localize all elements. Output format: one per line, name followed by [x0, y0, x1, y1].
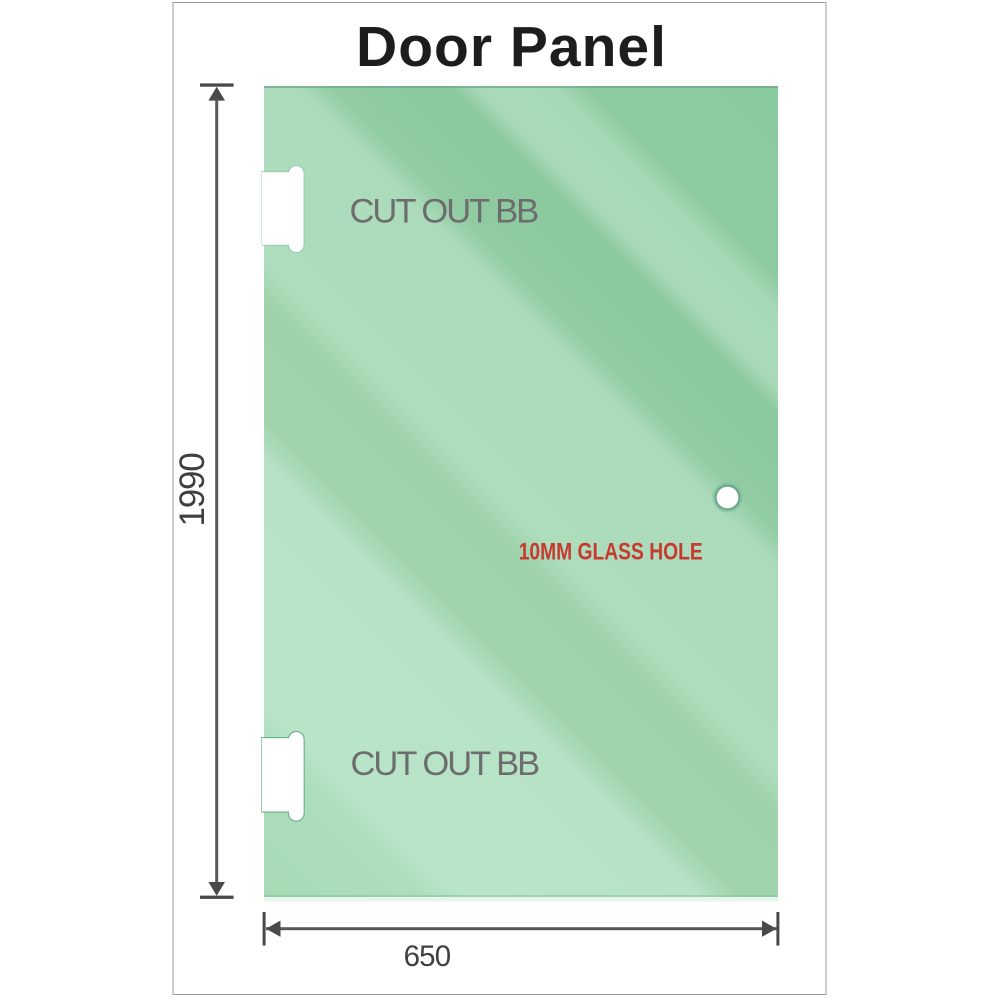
svg-text:10MM GLASS HOLE: 10MM GLASS HOLE: [519, 539, 703, 566]
svg-text:CUT OUT BB: CUT OUT BB: [350, 193, 539, 231]
svg-text:1990: 1990: [173, 453, 212, 527]
svg-text:650: 650: [404, 940, 451, 973]
svg-text:Door Panel: Door Panel: [356, 15, 667, 79]
svg-text:CUT OUT BB: CUT OUT BB: [351, 745, 540, 783]
